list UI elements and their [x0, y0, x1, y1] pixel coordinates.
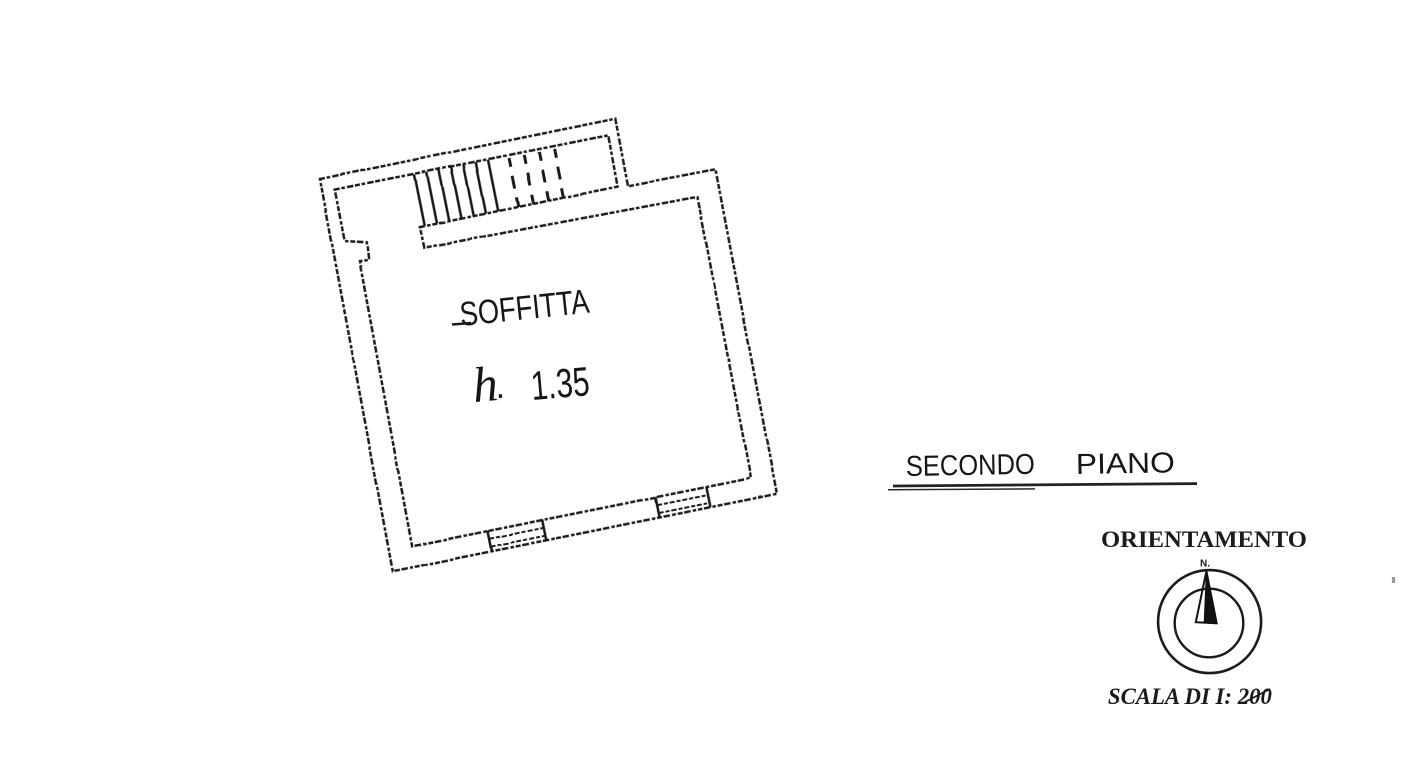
svg-text:SECONDO: SECONDO [906, 449, 1036, 483]
svg-text:N.: N. [1200, 559, 1210, 570]
svg-text:SOFFITTA: SOFFITTA [458, 283, 592, 334]
svg-text:PIANO: PIANO [1076, 447, 1176, 481]
svg-text:SCALA DI I: 200: SCALA DI I: 200 [1108, 684, 1272, 709]
svg-text:.: . [493, 368, 506, 407]
svg-text:ORIENTAMENTO: ORIENTAMENTO [1101, 527, 1307, 552]
svg-text:1.35: 1.35 [529, 358, 591, 409]
